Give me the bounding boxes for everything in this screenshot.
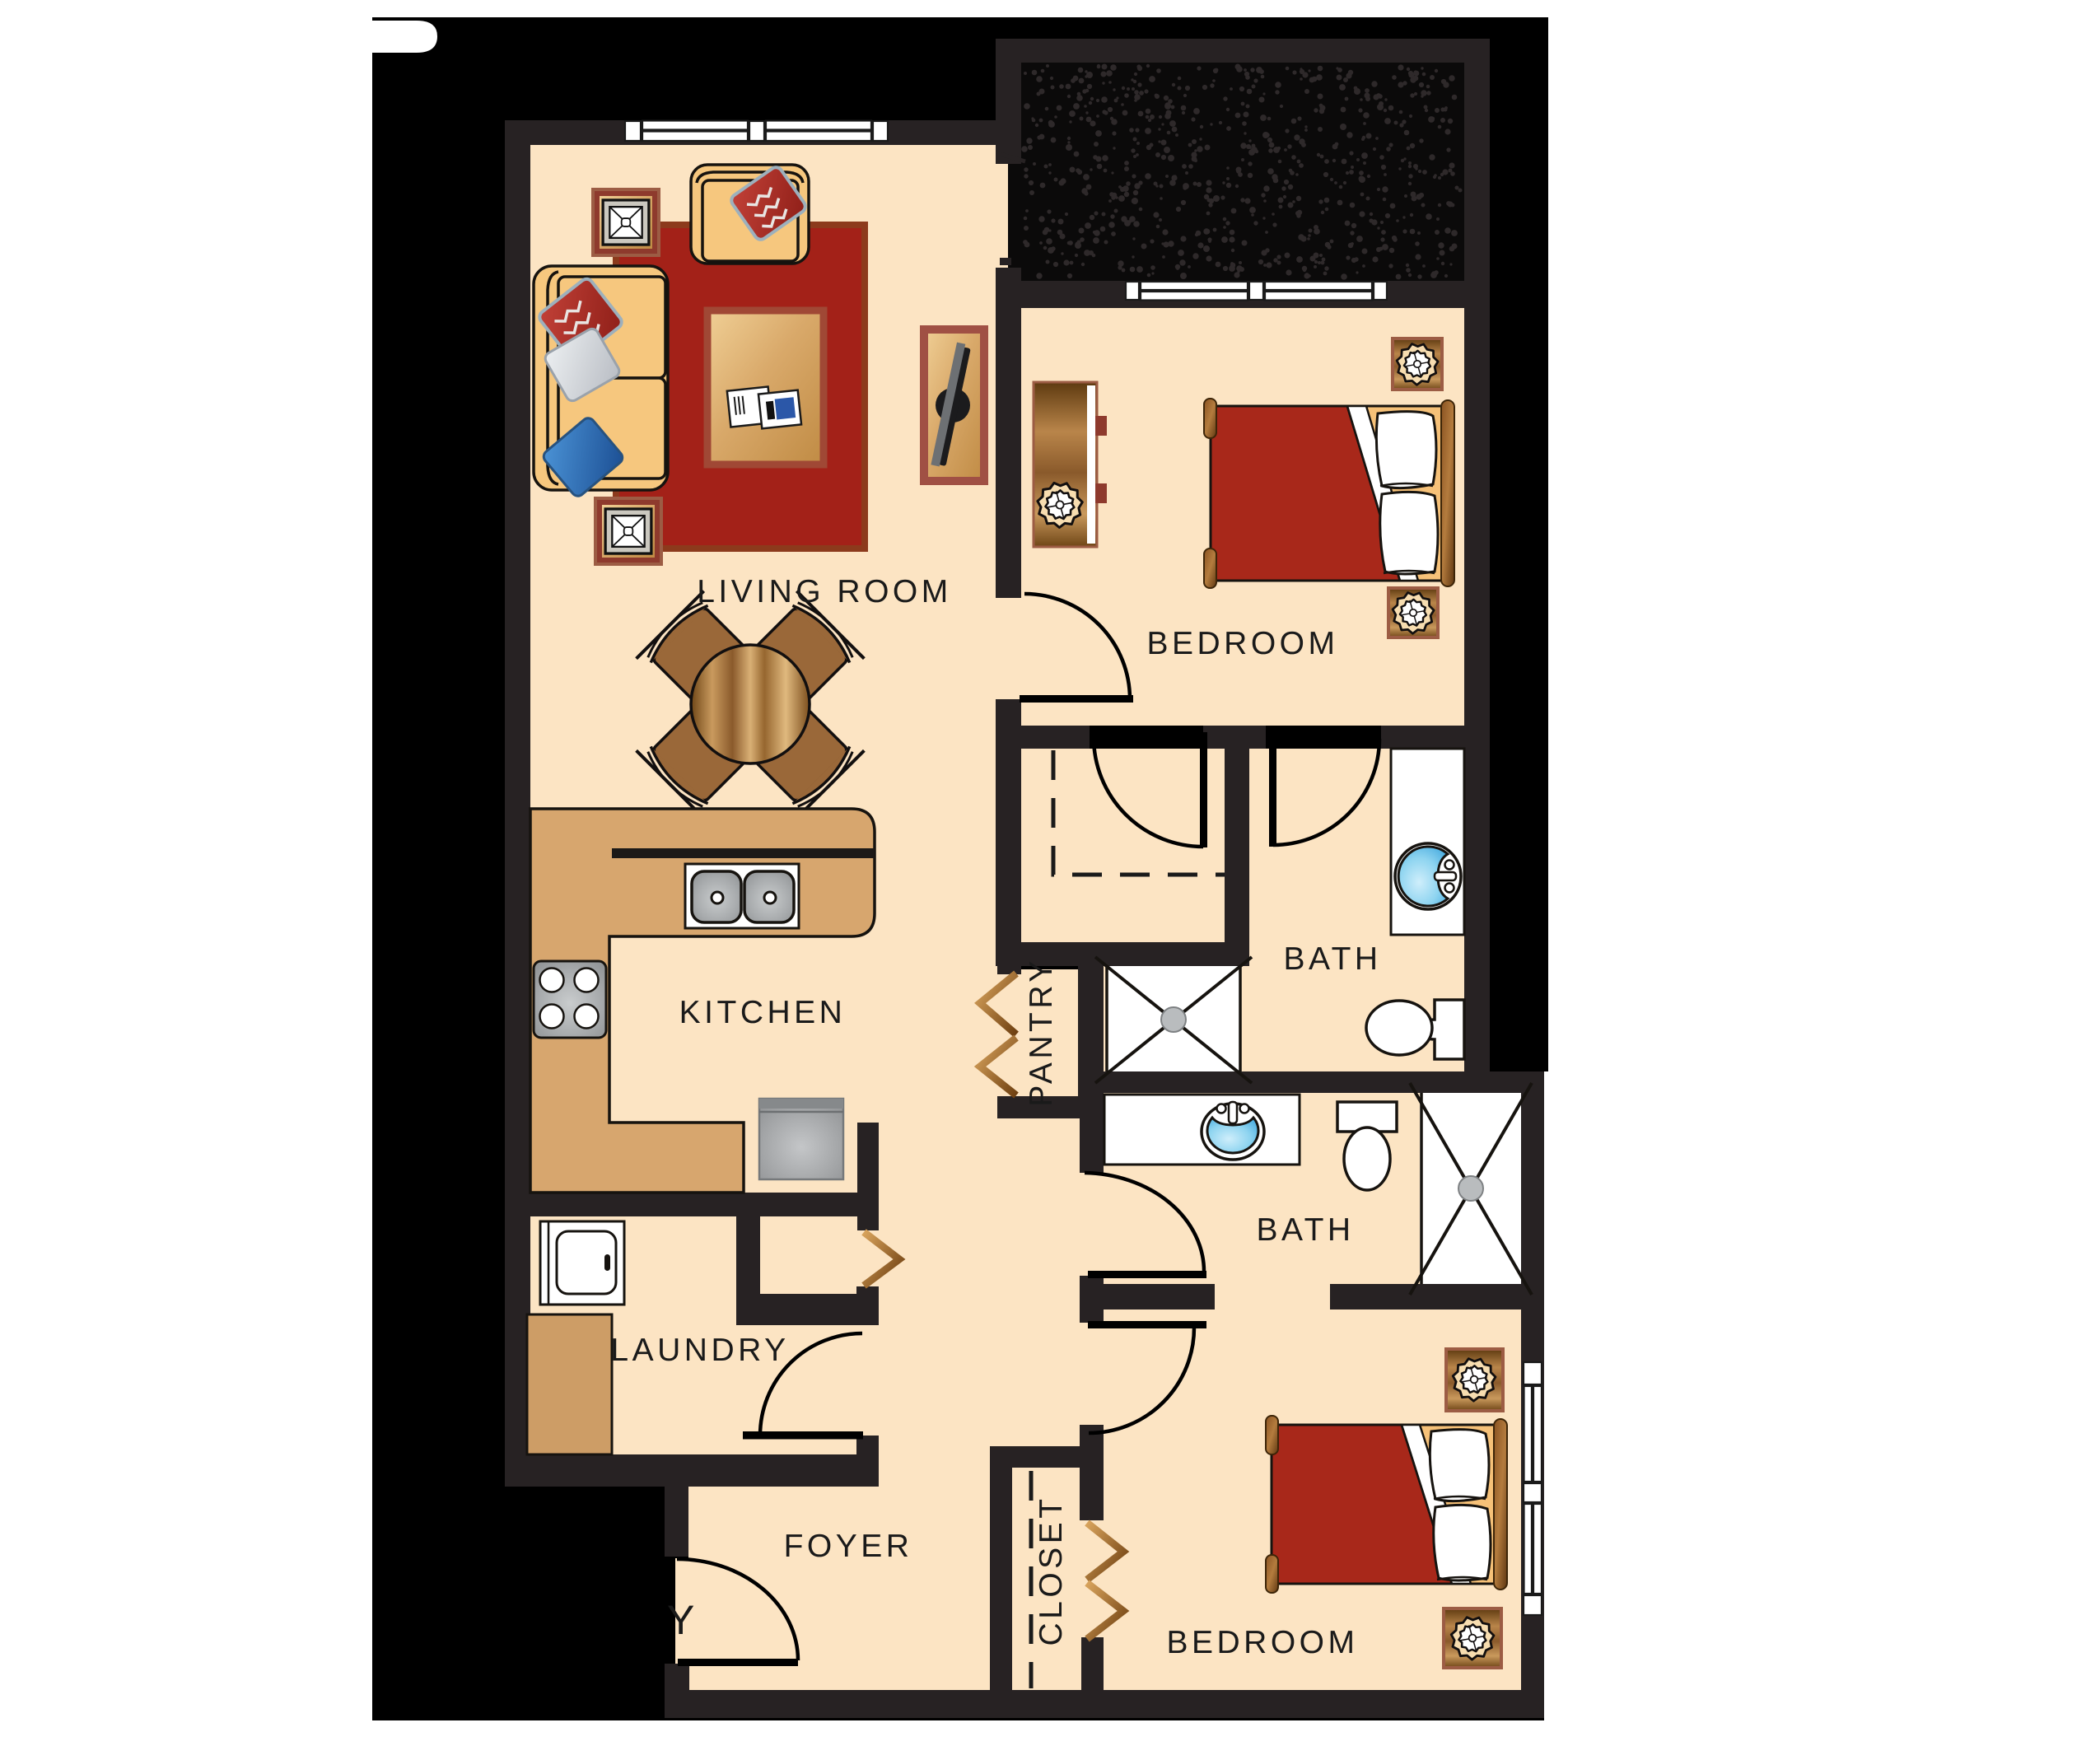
svg-text:LIVING ROOM: LIVING ROOM: [697, 574, 952, 609]
svg-text:PANTRY: PANTRY: [1024, 957, 1059, 1107]
svg-text:BATH: BATH: [1256, 1212, 1354, 1248]
svg-text:KITCHEN: KITCHEN: [679, 995, 847, 1030]
svg-text:CLOSET: CLOSET: [1034, 1495, 1069, 1646]
svg-text:FOYER: FOYER: [784, 1529, 913, 1564]
svg-text:BEDROOM: BEDROOM: [1166, 1625, 1358, 1660]
svg-text:BATH: BATH: [1283, 941, 1381, 977]
svg-text:BEDROOM: BEDROOM: [1146, 626, 1338, 661]
svg-text:LAUNDRY: LAUNDRY: [610, 1333, 789, 1368]
svg-text:Y: Y: [667, 1597, 698, 1643]
